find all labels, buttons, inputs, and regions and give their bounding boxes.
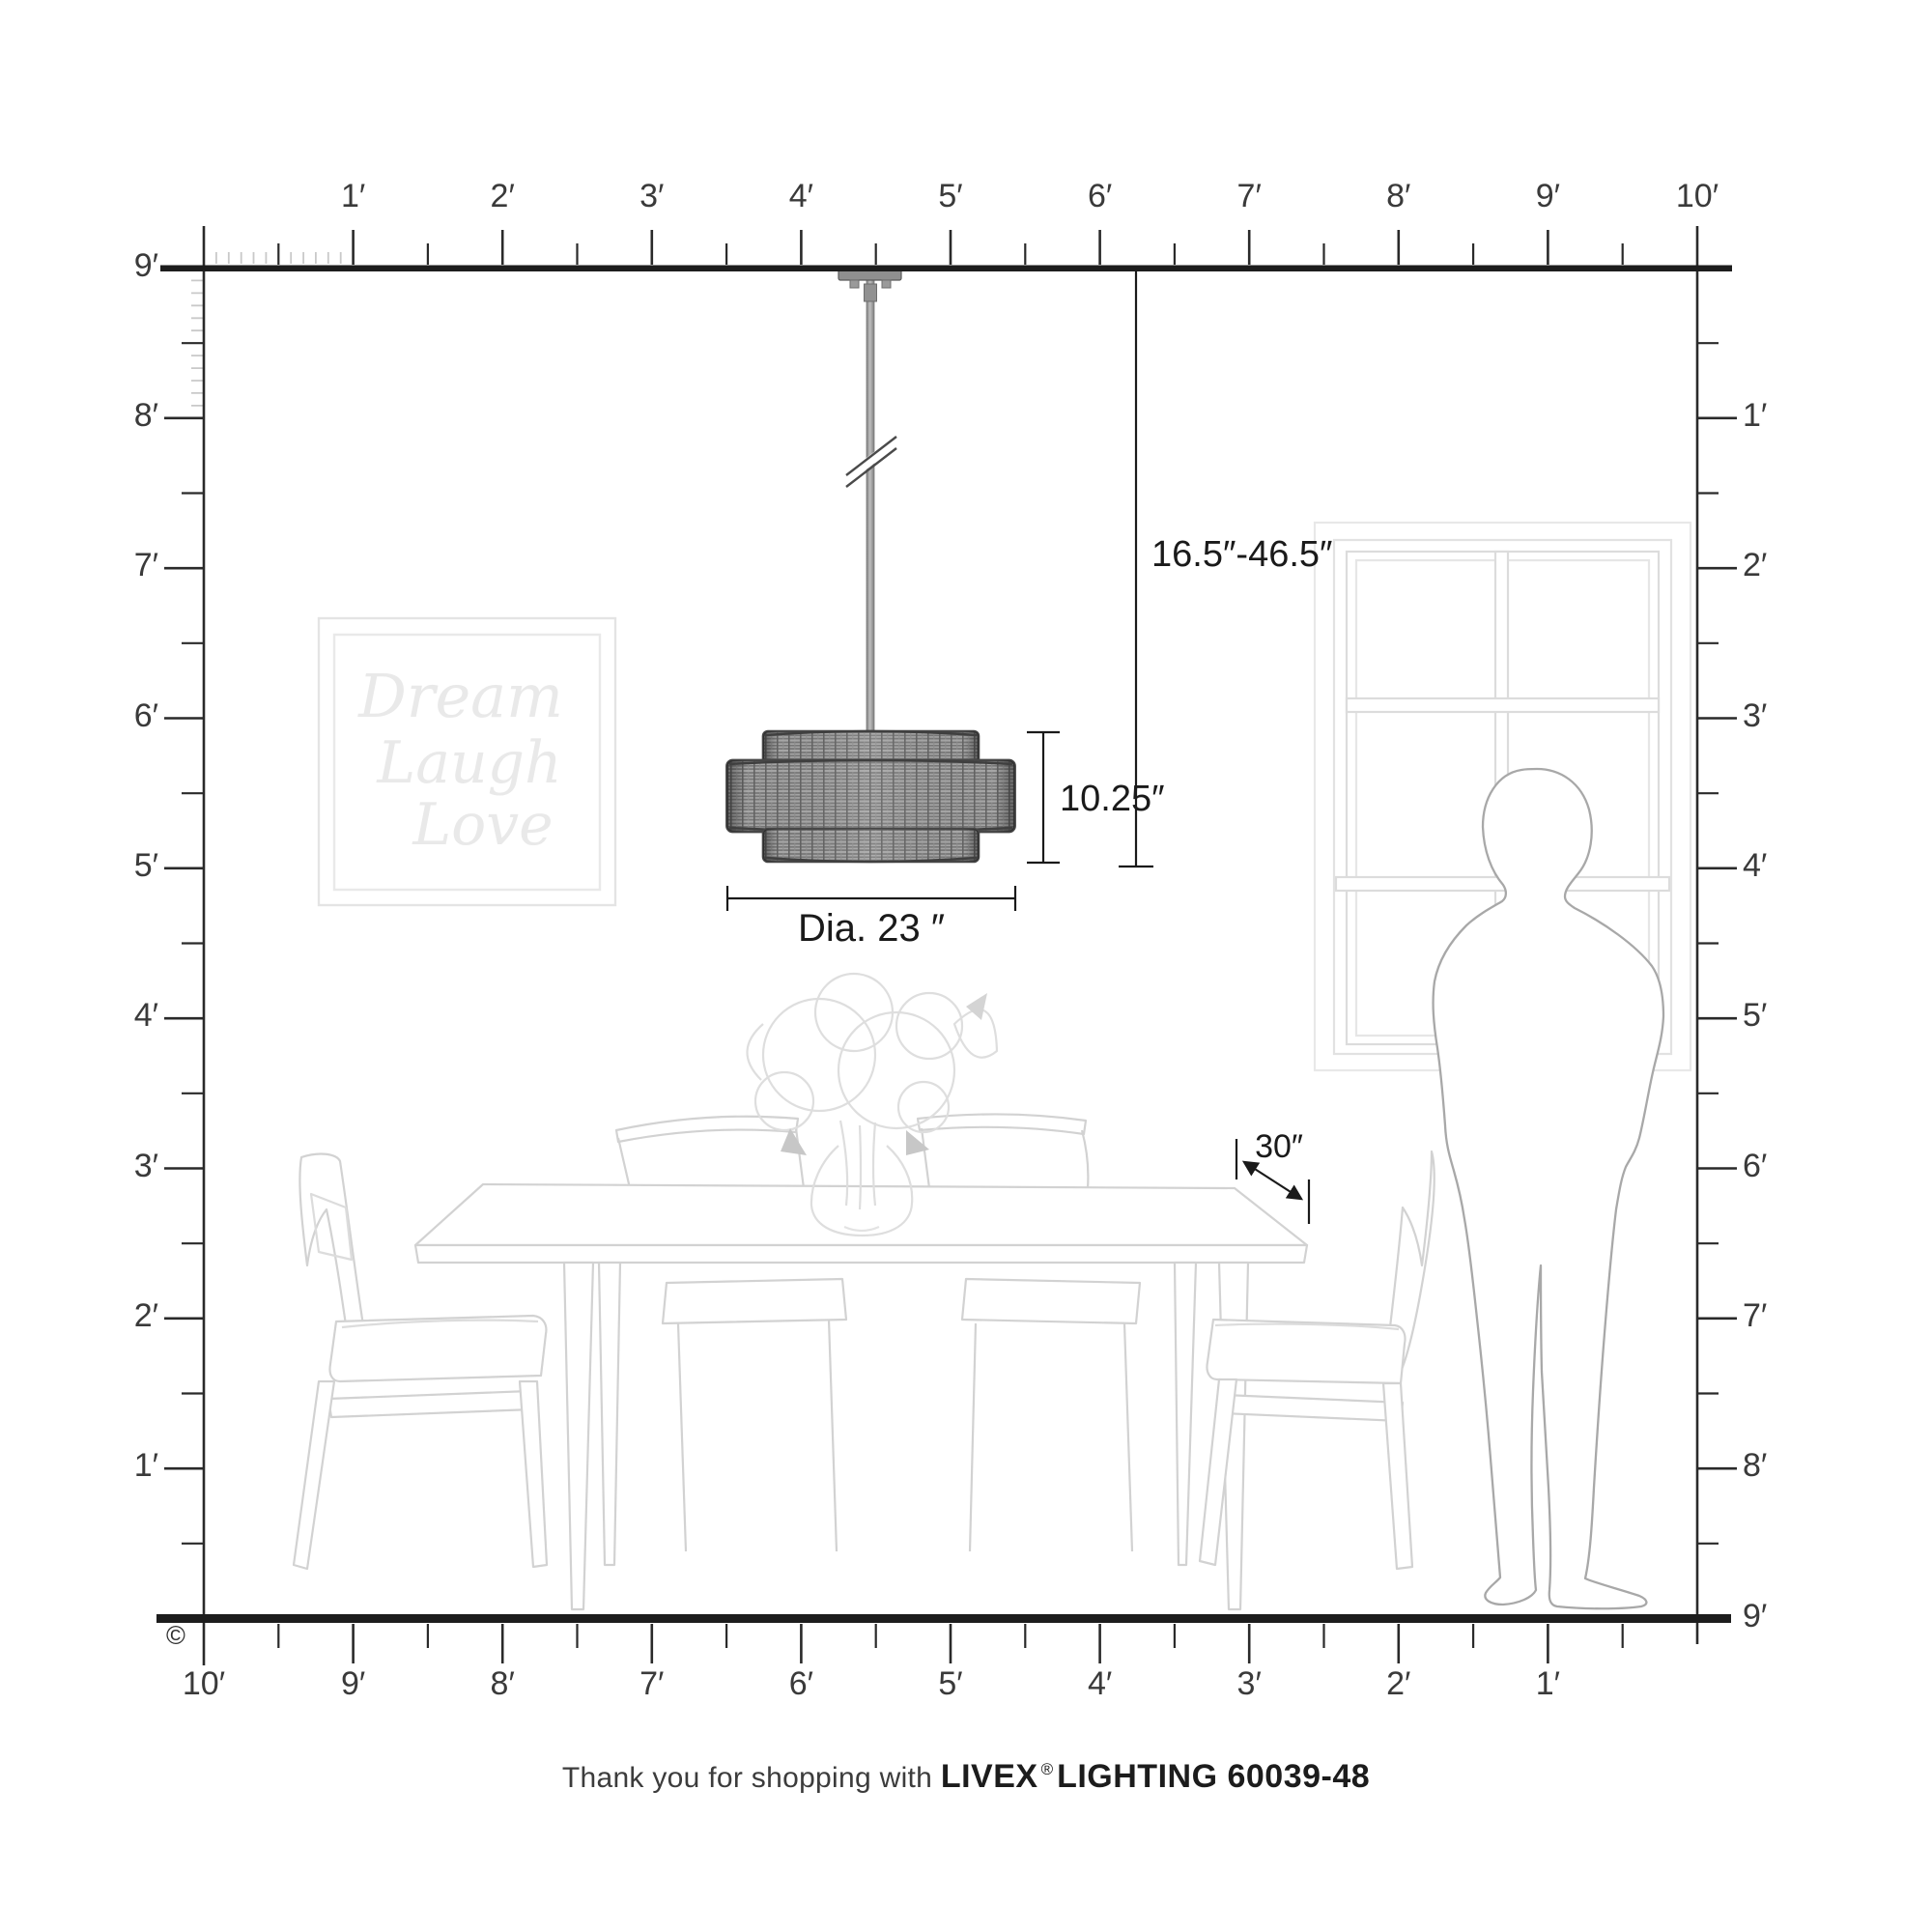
inch-ticks [191, 252, 341, 406]
ruler-bottom-label: 7′ [613, 1667, 691, 1700]
hanging-range-label: 16.5″-46.5″ [1151, 534, 1332, 575]
ruler-left-label: 5′ [89, 849, 158, 882]
art-line-love: Love [412, 791, 553, 859]
ruler-bottom-label: 5′ [912, 1667, 989, 1700]
ruler-right-label: 8′ [1743, 1449, 1820, 1482]
pendant-shade [727, 731, 1015, 862]
ruler-top-label: 3′ [613, 180, 691, 213]
table-leg [599, 1263, 620, 1565]
ruler-left-label: 6′ [89, 699, 158, 732]
copyright-symbol: © [166, 1621, 185, 1651]
dining-table [415, 1184, 1307, 1609]
chair-leg [1383, 1383, 1412, 1569]
art-line-dream: Dream [357, 661, 563, 731]
ruler-top-label: 2′ [464, 180, 541, 213]
table-clearance-label: 30″ [1255, 1128, 1303, 1165]
wall-art-text: Dream Laugh Love [357, 661, 563, 859]
table-leg [1175, 1263, 1196, 1565]
ruler-top-label: 4′ [762, 180, 839, 213]
ruler-right-label: 6′ [1743, 1150, 1820, 1182]
room-scale-scene: Dream Laugh Love [0, 0, 1932, 1932]
ruler-right-label: 5′ [1743, 999, 1820, 1032]
ruler-top-label: 10′ [1659, 180, 1736, 213]
ruler-bottom-label: 4′ [1062, 1667, 1139, 1700]
pendant-light [727, 269, 1015, 862]
ruler-left-label: 3′ [89, 1150, 158, 1182]
ruler-top-label: 5′ [912, 180, 989, 213]
fixture-height-dimension [1027, 732, 1060, 863]
scale-diagram-page: Dream Laugh Love [0, 0, 1932, 1932]
shade-middle-tier [727, 760, 1015, 832]
ruler-bottom-label: 3′ [1210, 1667, 1288, 1700]
registered-mark-icon: ® [1041, 1760, 1054, 1778]
shade-bottom-tier [763, 829, 979, 862]
footer-model: LIGHTING 60039-48 [1057, 1758, 1370, 1795]
ruler-right-label: 1′ [1743, 399, 1820, 432]
ruler-right-label: 3′ [1743, 699, 1820, 732]
shade-top-tier [763, 731, 979, 763]
ruler-right-label: 7′ [1743, 1299, 1820, 1332]
ruler-left-label: 9′ [89, 249, 158, 282]
fixture-height-label: 10.25″ [1060, 779, 1165, 819]
ruler-top-label: 7′ [1210, 180, 1288, 213]
ruler-top-label: 1′ [315, 180, 392, 213]
ruler-bottom-label: 9′ [315, 1667, 392, 1700]
chair-leg [520, 1381, 547, 1567]
ruler-left-label: 7′ [89, 549, 158, 582]
ruler-top-label: 6′ [1062, 180, 1139, 213]
ruler-bottom-label: 2′ [1360, 1667, 1437, 1700]
ruler-left-label: 2′ [89, 1299, 158, 1332]
ruler-left-label: 1′ [89, 1449, 158, 1482]
diameter-label: Dia. 23 ″ [798, 907, 945, 950]
chair-leg [294, 1381, 334, 1569]
ruler-bottom-label: 8′ [464, 1667, 541, 1700]
art-line-laugh: Laugh [376, 729, 561, 797]
footer-thanks: Thank you for shopping with [562, 1762, 941, 1794]
rear-chair-right [918, 1114, 1140, 1551]
ruler-bottom-label: 10′ [165, 1667, 242, 1700]
hanging-range-dimension [1119, 271, 1153, 867]
ruler-bottom-label: 6′ [762, 1667, 839, 1700]
ruler-top-label: 8′ [1360, 180, 1437, 213]
ceiling-line [160, 266, 1732, 272]
pendant-rod [867, 278, 874, 734]
floor-line [156, 1614, 1731, 1623]
table-leg [564, 1263, 593, 1609]
ruler-right-label: 9′ [1743, 1600, 1820, 1633]
footer-text: Thank you for shopping with LIVEX®LIGHTI… [0, 1758, 1932, 1796]
ruler-left-label: 4′ [89, 999, 158, 1032]
ruler-right-label: 2′ [1743, 549, 1820, 582]
ruler-right-label: 4′ [1743, 849, 1820, 882]
rear-chair-left [616, 1117, 846, 1551]
ruler-left-label: 8′ [89, 399, 158, 432]
ruler-bottom-label: 1′ [1509, 1667, 1586, 1700]
window-bar-upper [1347, 698, 1659, 712]
person-silhouette [1434, 769, 1663, 1608]
footer-brand: LIVEX [941, 1758, 1038, 1795]
dining-set [294, 974, 1435, 1609]
ruler-top-label: 9′ [1509, 180, 1586, 213]
